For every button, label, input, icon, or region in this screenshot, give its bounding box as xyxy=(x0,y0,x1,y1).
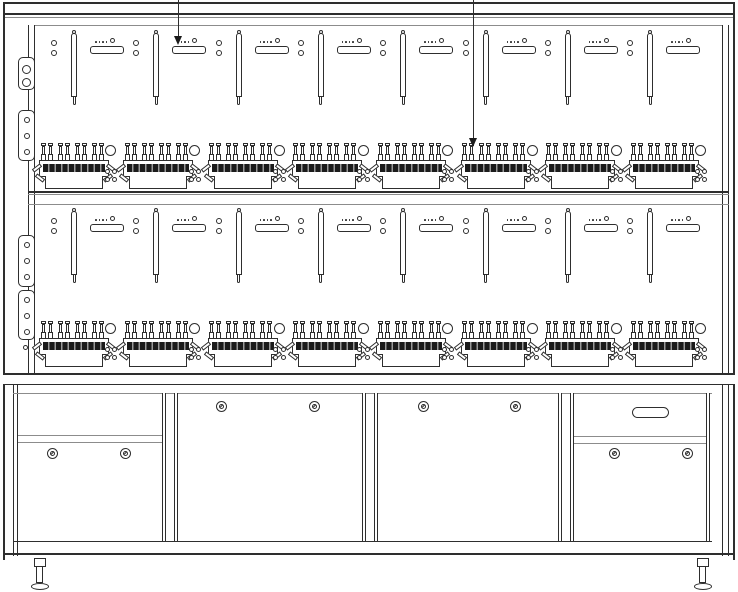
leveling-foot-base xyxy=(31,583,49,590)
row-1-pos8-round-cutout xyxy=(695,145,706,156)
leveling-foot-base xyxy=(694,583,712,590)
cabinet-right-face xyxy=(706,393,710,541)
row-2-pos5-round-cutout xyxy=(442,323,453,334)
row-2-pos1-round-cutout xyxy=(105,323,116,334)
row-2-pos3-screw-group-hole xyxy=(281,355,286,360)
meter-test-bench-drawing xyxy=(0,0,738,592)
row-2-pos3-round-cutout xyxy=(274,323,285,334)
row-2-pos5-hanger-rail-tip xyxy=(402,274,405,283)
row-2-pos6-screw-hole xyxy=(463,228,469,234)
row-1-pos5-screw-group-hole xyxy=(442,177,447,182)
row-1-pos6-hanger-rail xyxy=(483,33,489,97)
row-1-pos8-screw-group-hole xyxy=(695,177,700,182)
row-1-pos2-mounting-bracket xyxy=(172,46,206,54)
row-2-pos7-hanger-rail xyxy=(565,211,571,275)
row-2-pos8-round-cutout xyxy=(695,323,706,334)
row-1-pos1-hanger-rail-tip xyxy=(73,96,76,105)
row-1-pos4-screw-hole xyxy=(298,40,304,46)
row-2-pos4-screw-group-hole xyxy=(357,347,362,352)
row-2-pos7-screw-hole xyxy=(545,218,551,224)
row-2-pos3-bracket-dot xyxy=(270,219,272,221)
row-1-pos7-bracket-dot xyxy=(596,41,598,43)
row-2-pos8-terminal-skirt xyxy=(635,354,693,367)
row-2-pos5-terminal-strip xyxy=(380,342,442,350)
row-2-pos2-screw-hole xyxy=(133,218,139,224)
row-1-pos4-round-cutout xyxy=(358,145,369,156)
row-1-pos6-screw-group-hole xyxy=(526,169,531,174)
row-1-pos7-bracket-dot xyxy=(592,41,594,43)
row-2-pos1-bracket-dot xyxy=(102,219,104,221)
row-1-pos4-mounting-bracket xyxy=(337,46,371,54)
row-1-pos3-bracket-dot xyxy=(260,41,262,43)
hinge-hole xyxy=(24,329,30,335)
row-2-pos1-screw-group-hole xyxy=(105,347,110,352)
row-2-pos5-bracket-dot xyxy=(431,219,433,221)
callout-arrow-2-head xyxy=(469,138,477,147)
row-2-pos2-bracket-dot xyxy=(177,219,179,221)
row-2-pos4-bracket-dot xyxy=(342,219,344,221)
cabinet-bottom-line xyxy=(13,541,712,542)
row-2-pos1-hanger-rail xyxy=(71,211,77,275)
row-2-pos1-screw-group-hole xyxy=(112,355,117,360)
row-1-pos6-bracket-screw xyxy=(522,38,527,43)
row-1-pos7-screw-hole xyxy=(545,40,551,46)
hinge-hole xyxy=(24,258,30,264)
hinge-hole xyxy=(24,133,30,139)
row-1-pos8-bracket-dot xyxy=(682,41,684,43)
row-1-pos6-round-cutout xyxy=(527,145,538,156)
row-2-pos7-terminal-strip xyxy=(549,342,611,350)
row-2-pos4-screw-group-hole xyxy=(357,355,362,360)
row-2-pos4-hanger-rail-tip xyxy=(319,274,322,283)
left-bay-rail xyxy=(18,435,162,436)
row-1-pos8-terminal-skirt xyxy=(635,176,693,189)
row-1-pos1-round-cutout xyxy=(105,145,116,156)
row-1-pos1-bracket-screw xyxy=(110,38,115,43)
row-1-pos6-terminal-skirt xyxy=(467,176,525,189)
row-2-pos3-screw-hole xyxy=(216,228,222,234)
row-2-pos2-round-cutout xyxy=(189,323,200,334)
row-1-pos8-screw-hole xyxy=(627,50,633,56)
row-2-pos4-bracket-dot xyxy=(352,219,354,221)
row-1-pos5-hanger-rail-tip xyxy=(402,96,405,105)
row-1-pos2-screw-group-hole xyxy=(189,169,194,174)
leveling-foot-stem xyxy=(699,566,706,583)
row-1-pos3-hanger-rail xyxy=(236,33,242,97)
row-2-pos1-screw-hole xyxy=(51,218,57,224)
row-2-pos4-bracket-screw xyxy=(357,216,362,221)
row-2-pos7-mounting-bracket xyxy=(584,224,618,232)
row-2-pos6-bracket-screw xyxy=(522,216,527,221)
row-1-pos8-mounting-bracket xyxy=(666,46,700,54)
row-2-pos6-round-cutout xyxy=(527,323,538,334)
row-2-pos7-hanger-rail-tip xyxy=(566,274,569,283)
row-1-pos6-screw-hole xyxy=(463,40,469,46)
row-2-pos4-mounting-bracket xyxy=(337,224,371,232)
row-2-pos4-bracket-dot xyxy=(349,219,351,221)
row-2-pos6-terminal-skirt xyxy=(467,354,525,367)
row-1-pos4-terminal-skirt xyxy=(298,176,356,189)
row-1-pos8-terminal-strip xyxy=(633,164,695,172)
row-1-pos2-screw-hole xyxy=(133,40,139,46)
row-2-pos2-hanger-rail xyxy=(153,211,159,275)
row-1-pos2-screw-hole xyxy=(133,50,139,56)
row-1-pos5-round-cutout xyxy=(442,145,453,156)
row-1-pos4-screw-group-hole xyxy=(357,169,362,174)
row-1-pos8-bracket-screw xyxy=(686,38,691,43)
row-2-pos1-bracket-dot xyxy=(106,219,108,221)
row-2-pos7-screw-group-hole xyxy=(618,355,623,360)
row-2-pos6-bracket-dot xyxy=(514,219,516,221)
row-2-pos6-terminal-strip xyxy=(465,342,527,350)
row-2-pos3-bracket-screw xyxy=(275,216,280,221)
frame-right-post xyxy=(722,25,729,556)
row-1-pos8-screw-group-hole xyxy=(695,169,700,174)
row-1-pos1-screw-group-hole xyxy=(105,177,110,182)
row-2-pos1-terminal-skirt xyxy=(45,354,103,367)
row-1-pos6-bracket-dot xyxy=(517,41,519,43)
row-1-pos5-terminal-skirt xyxy=(382,176,440,189)
row-1-pos5-screw-group-hole xyxy=(449,177,454,182)
row-1-pos8-bracket-dot xyxy=(671,41,673,43)
row-1-pos6-screw-hole xyxy=(463,50,469,56)
row-2-pos8-screw-group-hole xyxy=(702,347,707,352)
row-1-pos2-bracket-screw xyxy=(192,38,197,43)
row-2-pos2-screw-group-hole xyxy=(189,347,194,352)
row-1-pos5-bracket-dot xyxy=(435,41,437,43)
frame-left-edge xyxy=(3,2,5,560)
row-2-pos1-terminal-strip xyxy=(43,342,105,350)
row-1-pos2-terminal-strip xyxy=(127,164,189,172)
row-1-pos5-screw-hole xyxy=(380,40,386,46)
row-1-pos7-bracket-dot xyxy=(589,41,591,43)
row-1-pos3-hanger-rail-tip xyxy=(237,96,240,105)
frame-top-rail-lower xyxy=(5,17,733,18)
row-1-pos7-hanger-rail xyxy=(565,33,571,97)
row-1-pos1-bracket-dot xyxy=(106,41,108,43)
row-2-pos8-bracket-dot xyxy=(678,219,680,221)
row-2-pos2-bracket-dot xyxy=(188,219,190,221)
row-1-pos3-mounting-bracket xyxy=(255,46,289,54)
row-2-pos8-bracket-dot xyxy=(682,219,684,221)
row-1-pos6-bracket-dot xyxy=(507,41,509,43)
leveling-foot-stem xyxy=(36,566,43,583)
row-1-pos3-terminal-skirt xyxy=(214,176,272,189)
row-2-pos3-terminal-skirt xyxy=(214,354,272,367)
row-2-pos7-screw-group-hole xyxy=(610,355,615,360)
row-2-pos4-bracket-dot xyxy=(345,219,347,221)
row-2-pos6-screw-group-hole xyxy=(526,347,531,352)
hinge-hole xyxy=(24,274,30,280)
cabinet-divider xyxy=(174,393,178,541)
row-2-pos2-terminal-skirt xyxy=(129,354,187,367)
row-1-pos2-terminal-skirt xyxy=(129,176,187,189)
cabinet-divider xyxy=(570,393,574,541)
row-2-pos8-bracket-screw xyxy=(686,216,691,221)
frame-right-edge xyxy=(733,2,735,560)
right-bay-rail xyxy=(574,436,706,437)
row-1-pos5-bracket-dot xyxy=(428,41,430,43)
row-1-pos1-terminal-skirt xyxy=(45,176,103,189)
row-2-pos2-terminal-strip xyxy=(127,342,189,350)
row-2-pos3-screw-group-hole xyxy=(273,355,278,360)
row-2-pos5-bracket-screw xyxy=(439,216,444,221)
row-1-pos5-terminal-strip xyxy=(380,164,442,172)
hinge-hole xyxy=(24,242,30,248)
row-1-pos7-bracket-screw xyxy=(604,38,609,43)
row-1-pos1-bracket-dot xyxy=(99,41,101,43)
row-1-pos1-mounting-bracket xyxy=(90,46,124,54)
row-1-pos5-bracket-dot xyxy=(431,41,433,43)
hinge-hole xyxy=(22,65,31,74)
row-1-pos7-screw-hole xyxy=(545,50,551,56)
cabinet-divider xyxy=(362,393,366,541)
row-1-pos3-bracket-dot xyxy=(263,41,265,43)
row-1-pos2-screw-group-hole xyxy=(196,177,201,182)
row-2-pos2-bracket-screw xyxy=(192,216,197,221)
row-2-pos3-screw-hole xyxy=(216,218,222,224)
row-2-pos7-bracket-dot xyxy=(592,219,594,221)
row-1-pos3-screw-group-hole xyxy=(281,177,286,182)
row-1-pos7-screw-group-hole xyxy=(618,177,623,182)
row2-top-line xyxy=(28,204,729,205)
row-2-pos7-bracket-screw xyxy=(604,216,609,221)
row-2-pos7-bracket-dot xyxy=(589,219,591,221)
row-2-pos7-bracket-dot xyxy=(599,219,601,221)
row-2-pos5-bracket-dot xyxy=(424,219,426,221)
row-1-pos6-screw-group-hole xyxy=(534,177,539,182)
row-2-pos6-bracket-dot xyxy=(510,219,512,221)
row-2-pos5-screw-hole xyxy=(380,228,386,234)
row-1-pos4-bracket-dot xyxy=(352,41,354,43)
row-1-pos5-screw-group-hole xyxy=(442,169,447,174)
row-1-pos4-hanger-rail xyxy=(318,33,324,97)
row-2-pos2-mounting-bracket xyxy=(172,224,206,232)
row-2-pos3-bracket-dot xyxy=(260,219,262,221)
row-2-pos1-mounting-bracket xyxy=(90,224,124,232)
row-1-pos2-bracket-dot xyxy=(184,41,186,43)
drawer-handle-slot xyxy=(632,407,669,418)
row-2-pos8-screw-hole xyxy=(627,218,633,224)
row-1-pos3-terminal-strip xyxy=(212,164,274,172)
row-2-pos8-mounting-bracket xyxy=(666,224,700,232)
row-2-pos5-bracket-dot xyxy=(428,219,430,221)
row-1-pos8-screw-hole xyxy=(627,40,633,46)
row-1-pos3-bracket-dot xyxy=(267,41,269,43)
callout-arrow-1-head xyxy=(174,36,182,45)
hinge-hole xyxy=(24,297,30,303)
cabinet-divider xyxy=(374,393,378,541)
hinge-hole xyxy=(22,78,31,87)
row-1-pos1-screw-hole xyxy=(51,40,57,46)
row-2-pos6-screw-group-hole xyxy=(526,355,531,360)
row-1-pos6-bracket-dot xyxy=(514,41,516,43)
row-1-pos2-hanger-rail xyxy=(153,33,159,97)
row-2-pos8-bracket-dot xyxy=(675,219,677,221)
row-2-pos2-screw-group-hole xyxy=(189,355,194,360)
hinge-hole xyxy=(24,149,30,155)
row-1-pos6-bracket-dot xyxy=(510,41,512,43)
row-2-pos4-screw-hole xyxy=(298,228,304,234)
row-1-pos7-mounting-bracket xyxy=(584,46,618,54)
row-1-pos8-hanger-rail xyxy=(647,33,653,97)
row-1-pos8-screw-group-hole xyxy=(702,169,707,174)
hinge-hole xyxy=(24,117,30,123)
row-separator-thin xyxy=(28,194,729,195)
row-2-pos2-screw-hole xyxy=(133,228,139,234)
row-1-pos7-hanger-rail-tip xyxy=(566,96,569,105)
row-2-pos1-screw-group-hole xyxy=(105,355,110,360)
row-2-pos6-mounting-bracket xyxy=(502,224,536,232)
row-1-pos3-screw-group-hole xyxy=(273,169,278,174)
row-1-pos3-bracket-dot xyxy=(270,41,272,43)
row-1-pos4-bracket-dot xyxy=(342,41,344,43)
row-2-pos5-screw-group-hole xyxy=(442,355,447,360)
row-2-pos4-terminal-skirt xyxy=(298,354,356,367)
row-1-pos4-bracket-dot xyxy=(349,41,351,43)
left-bay-rail xyxy=(18,442,162,443)
row-1-pos4-bracket-screw xyxy=(357,38,362,43)
row-2-pos1-bracket-dot xyxy=(99,219,101,221)
row-2-pos8-screw-group-hole xyxy=(695,347,700,352)
row-1-pos1-screw-hole xyxy=(51,50,57,56)
row-1-pos5-hanger-rail xyxy=(400,33,406,97)
row-2-pos3-terminal-strip xyxy=(212,342,274,350)
frame-top-rail-upper xyxy=(5,13,733,15)
row-2-pos2-screw-group-hole xyxy=(196,355,201,360)
row-2-pos8-bracket-dot xyxy=(671,219,673,221)
row-1-pos1-screw-group-hole xyxy=(112,177,117,182)
row-2-pos4-round-cutout xyxy=(358,323,369,334)
row-1-pos2-round-cutout xyxy=(189,145,200,156)
row-2-pos4-terminal-strip xyxy=(296,342,358,350)
row-1-pos1-bracket-dot xyxy=(102,41,104,43)
row-2-pos4-screw-hole xyxy=(298,218,304,224)
row-1-pos5-screw-hole xyxy=(380,50,386,56)
cabinet-divider xyxy=(162,393,166,541)
row-1-pos1-bracket-dot xyxy=(95,41,97,43)
row-1-pos3-round-cutout xyxy=(274,145,285,156)
row-1-pos4-screw-group-hole xyxy=(365,177,370,182)
right-bay-rail xyxy=(574,443,706,444)
row-2-pos3-hanger-rail xyxy=(236,211,242,275)
row-2-pos3-mounting-bracket xyxy=(255,224,289,232)
row-2-pos6-bracket-dot xyxy=(507,219,509,221)
row-1-pos7-bracket-dot xyxy=(599,41,601,43)
panel-top-line xyxy=(35,25,722,26)
row-2-pos8-screw-group-hole xyxy=(702,355,707,360)
row-2-pos3-bracket-dot xyxy=(267,219,269,221)
row-2-pos2-bracket-dot xyxy=(181,219,183,221)
row-2-pos8-hanger-rail-tip xyxy=(649,274,652,283)
row-2-pos6-screw-group-hole xyxy=(534,355,539,360)
row-1-pos6-screw-group-hole xyxy=(526,177,531,182)
row-1-pos5-bracket-screw xyxy=(439,38,444,43)
row-2-pos3-hanger-rail-tip xyxy=(237,274,240,283)
row-2-pos2-bracket-dot xyxy=(184,219,186,221)
frame-top-edge xyxy=(3,2,735,4)
row-1-pos2-bracket-dot xyxy=(188,41,190,43)
row-2-pos5-hanger-rail xyxy=(400,211,406,275)
row-1-pos2-screw-group-hole xyxy=(189,177,194,182)
row-2-pos1-screw-hole xyxy=(51,228,57,234)
row-2-pos6-bracket-dot xyxy=(517,219,519,221)
callout-arrow-1-line xyxy=(178,0,179,37)
row-1-pos6-hanger-rail-tip xyxy=(484,96,487,105)
row-1-pos3-screw-hole xyxy=(216,50,222,56)
callout-arrow-2-line xyxy=(473,0,474,139)
row-1-pos4-bracket-dot xyxy=(345,41,347,43)
row-1-pos1-screw-group-hole xyxy=(105,169,110,174)
row-2-pos7-screw-hole xyxy=(545,228,551,234)
row-1-pos4-hanger-rail-tip xyxy=(319,96,322,105)
row-1-pos7-terminal-strip xyxy=(549,164,611,172)
row-1-pos3-screw-group-hole xyxy=(273,177,278,182)
row-2-pos5-bracket-dot xyxy=(435,219,437,221)
row-2-pos7-terminal-skirt xyxy=(551,354,609,367)
row-2-pos8-screw-group-hole xyxy=(695,355,700,360)
row-2-pos1-bracket-dot xyxy=(95,219,97,221)
row-1-pos4-terminal-strip xyxy=(296,164,358,172)
row-1-pos8-screw-group-hole xyxy=(702,177,707,182)
row-1-pos6-mounting-bracket xyxy=(502,46,536,54)
row-1-pos8-hanger-rail-tip xyxy=(649,96,652,105)
row-1-pos8-bracket-dot xyxy=(678,41,680,43)
row-1-pos6-terminal-strip xyxy=(465,164,527,172)
row-1-pos4-screw-hole xyxy=(298,50,304,56)
row-2-pos7-screw-group-hole xyxy=(610,347,615,352)
row-2-pos7-round-cutout xyxy=(611,323,622,334)
row-2-pos5-mounting-bracket xyxy=(419,224,453,232)
row-2-pos5-screw-group-hole xyxy=(449,355,454,360)
row-2-pos3-screw-group-hole xyxy=(273,347,278,352)
row-1-pos1-hanger-rail xyxy=(71,33,77,97)
row-2-pos8-hanger-rail xyxy=(647,211,653,275)
row-2-pos5-screw-group-hole xyxy=(442,347,447,352)
cabinet-divider xyxy=(558,393,562,541)
bottom-rail xyxy=(3,553,735,555)
row-2-pos2-hanger-rail-tip xyxy=(155,274,158,283)
row-2-pos5-screw-hole xyxy=(380,218,386,224)
row-2-pos6-screw-hole xyxy=(463,218,469,224)
row-1-pos7-terminal-skirt xyxy=(551,176,609,189)
row-1-pos8-bracket-dot xyxy=(675,41,677,43)
row-1-pos7-screw-group-hole xyxy=(610,177,615,182)
row-2-pos1-hanger-rail-tip xyxy=(73,274,76,283)
row-separator-thick xyxy=(28,191,729,193)
row-2-pos1-bracket-screw xyxy=(110,216,115,221)
row-1-pos4-screw-group-hole xyxy=(357,177,362,182)
row-1-pos7-screw-group-hole xyxy=(610,169,615,174)
hinge-hole xyxy=(23,345,28,350)
row-2-pos5-terminal-skirt xyxy=(382,354,440,367)
row-1-pos5-mounting-bracket xyxy=(419,46,453,54)
hinge-hole xyxy=(24,313,30,319)
row-1-pos1-terminal-strip xyxy=(43,164,105,172)
row-1-pos5-bracket-dot xyxy=(424,41,426,43)
row-2-pos8-terminal-strip xyxy=(633,342,695,350)
frame-left-lower-post xyxy=(13,385,18,556)
row-2-pos6-hanger-rail xyxy=(483,211,489,275)
row-2-pos4-hanger-rail xyxy=(318,211,324,275)
row-2-pos6-hanger-rail-tip xyxy=(484,274,487,283)
row-2-pos8-screw-hole xyxy=(627,228,633,234)
row-1-pos7-round-cutout xyxy=(611,145,622,156)
row-1-pos3-screw-hole xyxy=(216,40,222,46)
row-1-pos2-hanger-rail-tip xyxy=(155,96,158,105)
row-2-pos4-screw-group-hole xyxy=(365,355,370,360)
row-2-pos7-bracket-dot xyxy=(596,219,598,221)
